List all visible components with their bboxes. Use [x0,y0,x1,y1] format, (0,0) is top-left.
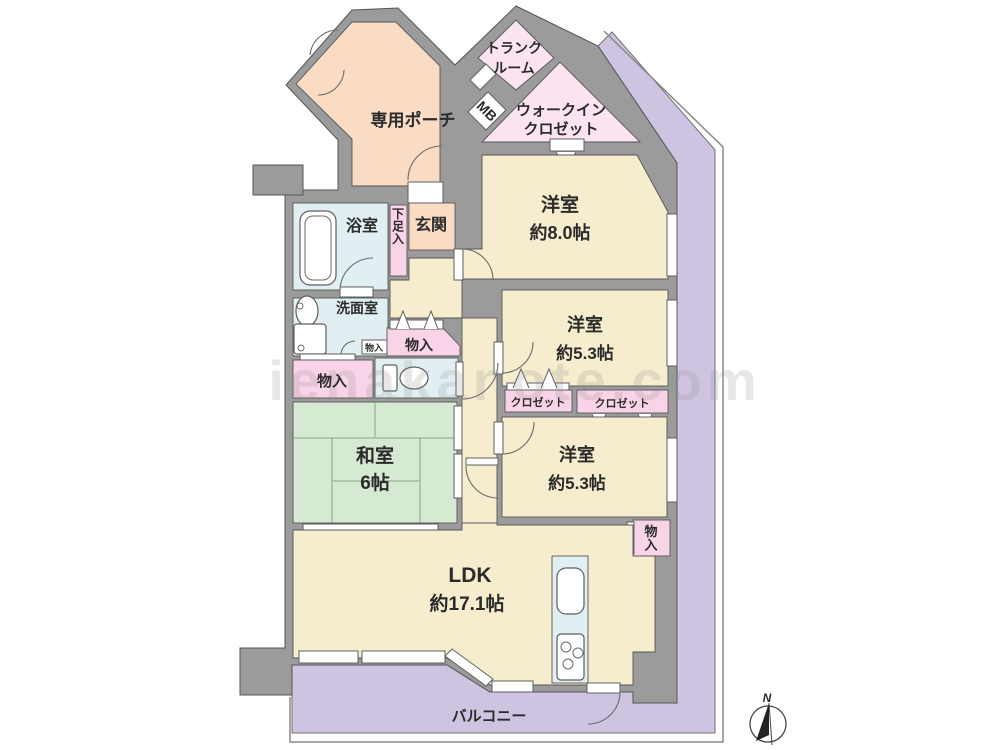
room-porch-floor [296,22,440,186]
ldk-window2 [362,651,445,663]
north-arrow-icon: N [750,691,786,745]
floorplan-canvas: ienakanote.com N 専用ポーチ トランク ルーム MB ウォークイ… [0,0,1000,750]
washitsu-sliding-door1 [454,406,462,450]
bedroom53b-door-opening [494,422,503,454]
washitsu-sliding-south [303,524,438,530]
room-label-bedroom53b-size: 約5.3帖 [548,473,606,493]
room-label-ldk-name: LDK [448,564,491,587]
bedroom53b-window [667,438,677,502]
room-label-bath: 浴室 [346,216,378,235]
room-bedroom53b-floor [502,417,667,517]
room-label-wic2: クロゼット [523,120,598,138]
north-label: N [763,691,772,705]
room-label-bedroom53a-name: 洋室 [567,314,603,335]
ldk-window3 [492,681,533,692]
pillar-top-left [253,165,303,195]
bedroom8-door-opening [454,249,463,280]
room-label-bedroom8-name: 洋室 [541,193,579,216]
room-label-washitsu-name: 和室 [356,444,394,467]
room-label-bedroom53b-name: 洋室 [559,444,595,465]
room-label-storage-west: 物入 [317,372,347,390]
kitchen-sink-icon [557,568,584,614]
room-label-ldk-size: 約17.1帖 [430,592,505,615]
room-bedroom8-floor [462,155,668,279]
room-label-washroom: 洗面室 [336,300,378,316]
balcony-door-opening [587,683,620,693]
washitsu-sliding-door2 [454,454,462,498]
wic-door-opening [550,139,584,151]
room-label-shoe-storage: 下足入 [392,207,404,246]
bath-door-opening [340,287,373,297]
washbasin-icon [296,296,318,326]
room-label-washitsu-size: 6帖 [360,471,390,494]
room-label-trunk1: トランク [486,40,542,56]
bedroom8-window [667,214,677,276]
room-label-storage-hall: 物入 [405,337,433,353]
room-label-entrance: 玄関 [415,215,447,234]
room-label-storage-small: 物入 [365,342,383,353]
room-label-bedroom8-size: 約8.0帖 [529,222,590,243]
kitchen-stove-icon [557,634,584,680]
room-label-closet2: クロゼット [595,396,650,410]
ldk-door-opening [466,458,498,465]
room-label-storage-br: 物入 [644,524,657,553]
room-label-closet1: クロゼット [511,395,566,409]
room-label-trunk2: ルーム [493,60,535,76]
room-label-porch: 専用ポーチ [371,110,456,130]
ldk-window1 [299,651,358,663]
room-label-balcony: バルコニー [452,708,527,725]
room-label-wic1: ウォークイン [516,102,606,119]
floorplan-drawing: ienakanote.com N 専用ポーチ トランク ルーム MB ウォークイ… [0,0,1000,750]
porch-entry-opening [408,182,443,203]
room-label-bedroom53a-size: 約5.3帖 [556,343,614,363]
